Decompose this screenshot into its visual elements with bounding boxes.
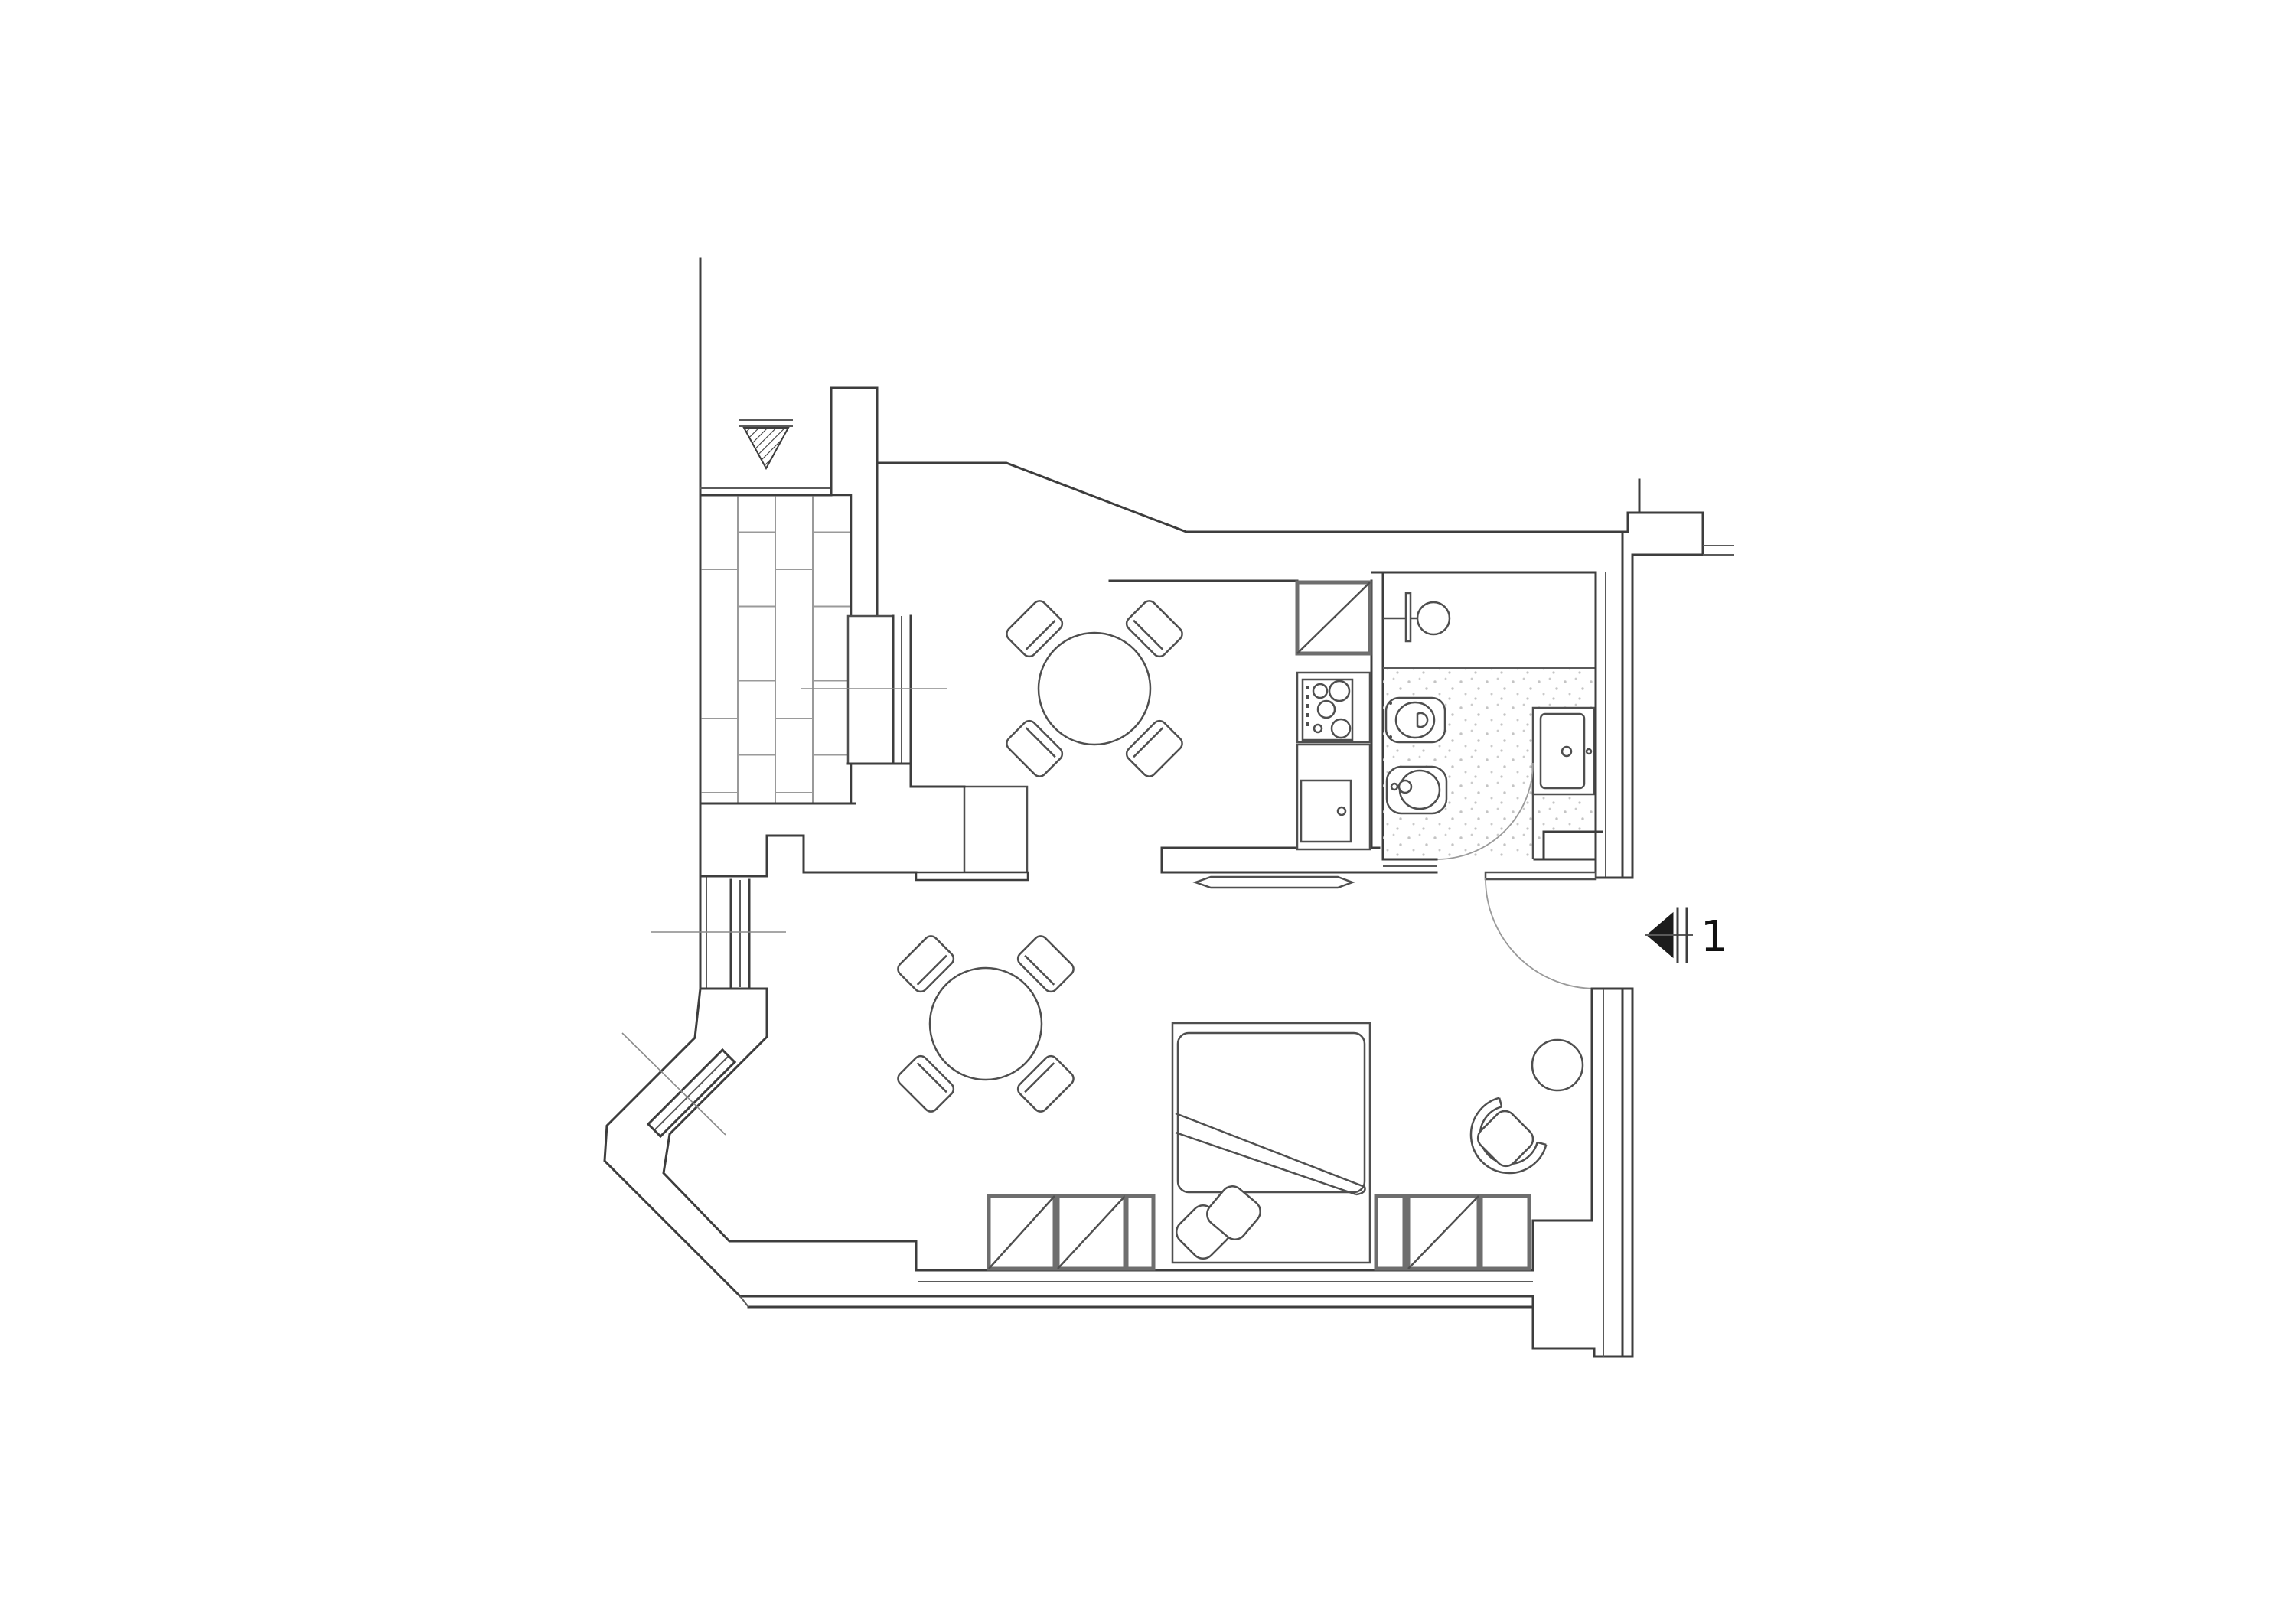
interior-notch: [767, 836, 916, 872]
triangle-icon: [744, 428, 788, 468]
wardrobe-left: [989, 1196, 1153, 1269]
double-bed: [1172, 1023, 1370, 1263]
washbasin: [1383, 593, 1450, 641]
entry-door-swing-arc: [1486, 878, 1596, 989]
shower-tray: [1533, 708, 1594, 794]
top-right-wall-step: [1628, 513, 1703, 555]
kitchen-sink-cabinet: [1297, 745, 1370, 849]
round-table: [1039, 633, 1150, 745]
section-marker-label: 1: [1701, 912, 1728, 962]
duvet: [1178, 1033, 1365, 1192]
round-table: [930, 968, 1042, 1080]
armchair: [1455, 1094, 1550, 1189]
entry-door: [1486, 872, 1596, 989]
brick-paving: [700, 495, 851, 803]
section-marker: 1: [1645, 908, 1728, 962]
dining-table-upper: [1004, 598, 1186, 780]
toilet: [1386, 698, 1445, 742]
armchair-seat: [1473, 1106, 1537, 1170]
partition-column: [964, 787, 1027, 872]
kitchen-stove: [1297, 673, 1370, 742]
wardrobe-right: [1376, 1196, 1529, 1269]
floor-plan-canvas: 1: [0, 0, 2296, 1623]
sliding-door-panel: [1195, 877, 1352, 888]
entry-door-leaf: [1486, 872, 1596, 879]
bay-corner: [605, 836, 1632, 1357]
balcony-door-leaf: [848, 616, 893, 764]
side-table: [1532, 1040, 1583, 1090]
balcony: [700, 259, 855, 989]
bidet: [1387, 767, 1446, 813]
left-window: [651, 876, 786, 989]
dining-table-lower: [895, 934, 1077, 1115]
bathroom: [1372, 572, 1602, 866]
void-triangle-symbol: [739, 420, 793, 468]
bay-window-centerline: [622, 1033, 726, 1135]
duct-column-and-top-wall: [831, 388, 1628, 532]
kitchen-fridge: [1297, 582, 1370, 653]
partition-band-a: [916, 872, 1028, 880]
floor-plan-drawing: 1: [0, 0, 2296, 1623]
